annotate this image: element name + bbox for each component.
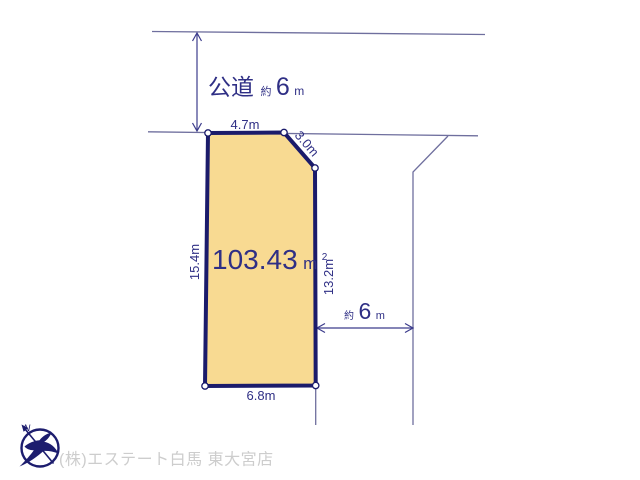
lot-diagram-canvas: 公道 約 6 m 約 6 m 4.7m 3.0m 15.4m 13.2m 6.8… [0,0,640,480]
top-road-name: 公道 [208,74,254,100]
vertex-dot-top-left [205,130,211,136]
parcel-area-unit: m [303,254,317,273]
vertex-dot-corner [312,165,318,171]
dimension-top: 4.7m [231,117,260,132]
top-road-upper-edge-line [152,32,485,35]
vertex-dot-top-right [281,129,287,135]
top-road-approx: 約 [260,84,271,98]
top-road-width-arrow [193,33,202,131]
company-name-watermark: (株)エステート白馬 東大宮店 [59,451,274,469]
top-road-lower-edge-line [148,132,478,136]
north-label: N [24,423,31,434]
vertex-dot-bottom-left [202,383,208,389]
dimension-left: 15.4m [187,244,202,280]
vertex-dot-bottom-right [313,382,319,388]
right-road-label: 約 6 m [344,298,385,324]
dimension-right: 13.2m [321,259,336,295]
top-road-width-unit: m [294,84,304,98]
right-road-width-value: 6 [358,298,371,324]
right-road-edge-line [413,136,448,425]
right-road-width-arrow [317,324,413,333]
parcel-area-value: 103.43 [212,244,298,275]
parcel-area-superscript: 2 [322,252,328,263]
top-road-label: 公道 約 6 m [208,73,304,101]
top-road-width-value: 6 [276,73,290,101]
company-logo: N [20,423,59,467]
right-road-width-unit: m [376,310,385,322]
right-road-approx: 約 [344,309,354,322]
lot-diagram-page: 公道 約 6 m 約 6 m 4.7m 3.0m 15.4m 13.2m 6.8… [0,0,640,480]
dimension-bottom: 6.8m [247,388,276,403]
